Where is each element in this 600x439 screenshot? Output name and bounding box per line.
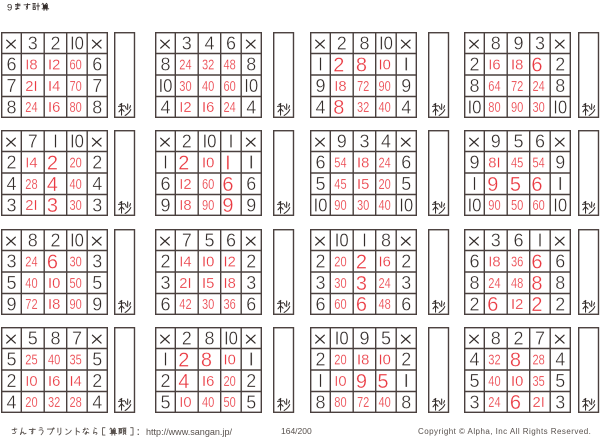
svg-text:4: 4 <box>6 174 16 194</box>
svg-text:40: 40 <box>25 276 37 292</box>
svg-text:3: 3 <box>6 252 16 272</box>
svg-text:60: 60 <box>533 198 545 214</box>
svg-text:24: 24 <box>25 100 37 116</box>
svg-text:9: 9 <box>336 131 346 151</box>
svg-text:I6: I6 <box>48 374 60 390</box>
svg-text:6: 6 <box>401 152 411 172</box>
svg-text:5: 5 <box>27 329 37 349</box>
svg-text:6: 6 <box>246 294 256 314</box>
svg-text:I6: I6 <box>378 254 390 270</box>
svg-text:32: 32 <box>489 353 501 369</box>
svg-text:8: 8 <box>491 329 501 349</box>
svg-text:8: 8 <box>315 393 325 413</box>
svg-text:30: 30 <box>202 297 214 313</box>
svg-text:3: 3 <box>359 131 369 151</box>
svg-text:20: 20 <box>334 353 346 369</box>
svg-text:8: 8 <box>359 33 369 53</box>
svg-text:90: 90 <box>69 297 81 313</box>
svg-text:I0: I0 <box>399 195 413 215</box>
svg-text:32: 32 <box>357 100 369 116</box>
svg-text:I0: I0 <box>378 353 390 369</box>
svg-text:6: 6 <box>470 252 480 272</box>
svg-text:7: 7 <box>27 131 37 151</box>
svg-text:28: 28 <box>533 353 545 369</box>
svg-text:3: 3 <box>160 273 170 293</box>
svg-text:9: 9 <box>487 173 498 195</box>
svg-text:60: 60 <box>334 297 346 313</box>
svg-text:I0: I0 <box>378 57 390 73</box>
svg-text:I0: I0 <box>334 374 346 390</box>
svg-text:8: 8 <box>6 97 16 117</box>
svg-text:I: I <box>317 371 322 391</box>
svg-text:5: 5 <box>510 173 521 195</box>
svg-text:I0: I0 <box>25 374 37 390</box>
svg-text:I0: I0 <box>223 353 235 369</box>
svg-text:2I: 2I <box>179 276 191 292</box>
svg-text:5: 5 <box>246 393 256 413</box>
svg-text:3: 3 <box>92 252 102 272</box>
svg-text:I: I <box>361 230 366 250</box>
svg-text:5: 5 <box>380 329 390 349</box>
svg-text:24: 24 <box>489 395 501 411</box>
svg-text:3: 3 <box>27 33 37 53</box>
svg-text:I0: I0 <box>202 131 216 151</box>
svg-text:4: 4 <box>556 350 566 370</box>
svg-text:20: 20 <box>223 374 235 390</box>
svg-text:I4: I4 <box>69 374 81 390</box>
svg-text:I8: I8 <box>511 57 523 73</box>
svg-text:90: 90 <box>511 100 523 116</box>
svg-text:5: 5 <box>401 174 411 194</box>
svg-text:9: 9 <box>160 195 170 215</box>
svg-text:48: 48 <box>223 57 235 73</box>
svg-text:I0: I0 <box>179 395 191 411</box>
svg-text:4: 4 <box>380 131 390 151</box>
svg-text:8: 8 <box>532 273 543 295</box>
svg-text:5: 5 <box>160 393 170 413</box>
svg-text:20: 20 <box>25 395 37 411</box>
svg-text:9: 9 <box>556 152 566 172</box>
svg-text:60: 60 <box>69 57 81 73</box>
svg-text:8: 8 <box>92 97 102 117</box>
svg-text:2: 2 <box>470 294 480 314</box>
svg-text:3: 3 <box>6 195 16 215</box>
svg-text:8: 8 <box>333 96 344 118</box>
svg-text:3: 3 <box>401 273 411 293</box>
svg-text:2: 2 <box>181 329 191 349</box>
svg-text:I0: I0 <box>223 329 237 349</box>
svg-text:I0: I0 <box>554 195 568 215</box>
svg-text:2I: 2I <box>25 198 37 214</box>
svg-text:I: I <box>228 131 233 151</box>
svg-text:9: 9 <box>246 195 256 215</box>
svg-text:36: 36 <box>223 297 235 313</box>
svg-text:6: 6 <box>535 131 545 151</box>
svg-text:5: 5 <box>470 371 480 391</box>
svg-text:80: 80 <box>334 395 346 411</box>
svg-text:4: 4 <box>204 33 214 53</box>
svg-text:9: 9 <box>491 131 501 151</box>
svg-text:2: 2 <box>355 251 366 273</box>
svg-text:90: 90 <box>378 79 390 95</box>
svg-text:9: 9 <box>355 371 366 393</box>
svg-text:40: 40 <box>48 353 60 369</box>
svg-text:I8: I8 <box>179 198 191 214</box>
svg-text:36: 36 <box>511 254 523 270</box>
svg-text:2: 2 <box>6 371 16 391</box>
svg-text:6: 6 <box>355 294 366 316</box>
svg-text:72: 72 <box>357 395 369 411</box>
svg-text:5: 5 <box>315 174 325 194</box>
svg-text:40: 40 <box>202 395 214 411</box>
svg-text:I8: I8 <box>357 353 369 369</box>
svg-text:I2: I2 <box>179 100 191 116</box>
svg-text:4: 4 <box>92 174 102 194</box>
svg-text:54: 54 <box>533 155 545 171</box>
svg-text:70: 70 <box>69 79 81 95</box>
svg-text:I8: I8 <box>489 254 501 270</box>
svg-text:2: 2 <box>46 152 57 174</box>
svg-text:8: 8 <box>355 54 366 76</box>
svg-text:6: 6 <box>514 230 524 250</box>
svg-text:I4: I4 <box>48 79 60 95</box>
svg-text:2: 2 <box>315 252 325 272</box>
svg-text:I: I <box>53 131 58 151</box>
svg-text:8: 8 <box>556 76 566 96</box>
svg-text:6: 6 <box>160 294 170 314</box>
svg-text:2: 2 <box>6 152 16 172</box>
svg-text:72: 72 <box>511 79 523 95</box>
svg-text:45: 45 <box>511 155 523 171</box>
svg-text:I6: I6 <box>202 100 214 116</box>
svg-text:30: 30 <box>533 100 545 116</box>
svg-text:4: 4 <box>401 97 411 117</box>
svg-text:I8: I8 <box>223 276 235 292</box>
svg-text:8: 8 <box>200 350 211 372</box>
svg-text:8: 8 <box>204 329 214 349</box>
svg-text:6: 6 <box>401 294 411 314</box>
svg-text:5: 5 <box>6 273 16 293</box>
svg-text:4: 4 <box>92 393 102 413</box>
svg-text:8: 8 <box>470 273 480 293</box>
svg-text:8: 8 <box>556 273 566 293</box>
svg-text:72: 72 <box>357 79 369 95</box>
svg-text:I: I <box>403 371 408 391</box>
svg-text:I: I <box>317 54 322 74</box>
svg-text:80: 80 <box>489 100 501 116</box>
svg-text:6: 6 <box>315 294 325 314</box>
svg-text:6: 6 <box>556 252 566 272</box>
svg-text:2: 2 <box>336 33 346 53</box>
svg-text:40: 40 <box>69 177 81 193</box>
svg-text:I0: I0 <box>334 329 348 349</box>
svg-text:30: 30 <box>179 79 191 95</box>
svg-text:2: 2 <box>532 294 543 316</box>
svg-text:4: 4 <box>470 350 480 370</box>
svg-text:I: I <box>248 152 253 172</box>
svg-text:I2: I2 <box>511 297 523 313</box>
svg-text:8: 8 <box>470 76 480 96</box>
svg-text:I5: I5 <box>202 276 214 292</box>
svg-text:I0: I0 <box>313 195 327 215</box>
svg-text:I2: I2 <box>48 57 60 73</box>
svg-text:I4: I4 <box>179 254 191 270</box>
svg-text:24: 24 <box>223 100 235 116</box>
svg-text:3: 3 <box>246 273 256 293</box>
svg-text:I0: I0 <box>158 76 172 96</box>
svg-text:20: 20 <box>334 254 346 270</box>
svg-text:I0: I0 <box>70 33 84 53</box>
svg-text:I0: I0 <box>468 97 482 117</box>
svg-text:8: 8 <box>401 393 411 413</box>
svg-text:I5: I5 <box>357 177 369 193</box>
svg-text:I6: I6 <box>202 374 214 390</box>
svg-text:2: 2 <box>178 350 189 372</box>
svg-text:30: 30 <box>357 198 369 214</box>
svg-text:6: 6 <box>222 173 233 195</box>
svg-text:2: 2 <box>401 350 411 370</box>
svg-text:6: 6 <box>532 54 543 76</box>
svg-text:7: 7 <box>72 329 82 349</box>
svg-text:9: 9 <box>401 76 411 96</box>
svg-text:5: 5 <box>556 371 566 391</box>
svg-text:50: 50 <box>69 276 81 292</box>
svg-text:2: 2 <box>401 252 411 272</box>
svg-text:I4: I4 <box>25 155 37 171</box>
svg-text:64: 64 <box>489 79 501 95</box>
svg-text:2: 2 <box>333 54 344 76</box>
svg-text:90: 90 <box>489 198 501 214</box>
svg-text:35: 35 <box>69 353 81 369</box>
svg-text:8: 8 <box>246 54 256 74</box>
svg-text:3: 3 <box>181 33 191 53</box>
svg-text:48: 48 <box>378 297 390 313</box>
svg-text:I8: I8 <box>48 297 60 313</box>
svg-text:6: 6 <box>6 54 16 74</box>
svg-text:I0: I0 <box>334 230 348 250</box>
svg-text:I0: I0 <box>202 155 214 171</box>
svg-text:40: 40 <box>378 198 390 214</box>
svg-text:6: 6 <box>92 54 102 74</box>
svg-text:7: 7 <box>92 76 102 96</box>
svg-text:3: 3 <box>46 195 57 217</box>
svg-text:I: I <box>558 174 563 194</box>
svg-text:9: 9 <box>7 3 12 14</box>
svg-text:5: 5 <box>92 273 102 293</box>
svg-text:6: 6 <box>532 251 543 273</box>
svg-text:6: 6 <box>246 174 256 194</box>
svg-text:2I: 2I <box>533 395 545 411</box>
svg-text:2: 2 <box>50 33 60 53</box>
svg-text:40: 40 <box>378 395 390 411</box>
svg-text:72: 72 <box>25 297 37 313</box>
svg-text:9: 9 <box>6 294 16 314</box>
svg-text:I0: I0 <box>202 254 214 270</box>
svg-text:2: 2 <box>315 350 325 370</box>
svg-text:60: 60 <box>202 177 214 193</box>
svg-text:2: 2 <box>92 371 102 391</box>
svg-text:2: 2 <box>178 152 189 174</box>
svg-text:I2: I2 <box>179 177 191 193</box>
svg-text:20: 20 <box>378 177 390 193</box>
svg-text:3: 3 <box>92 195 102 215</box>
svg-text:2: 2 <box>514 329 524 349</box>
svg-text:I: I <box>403 54 408 74</box>
svg-text:24: 24 <box>179 57 191 73</box>
svg-text:32: 32 <box>202 57 214 73</box>
svg-text:2: 2 <box>556 54 566 74</box>
svg-text:80: 80 <box>69 100 81 116</box>
svg-text:8: 8 <box>491 33 501 53</box>
svg-text:54: 54 <box>334 155 346 171</box>
svg-text:8: 8 <box>380 230 390 250</box>
svg-text:5: 5 <box>204 230 214 250</box>
svg-text:2: 2 <box>181 131 191 151</box>
svg-text:25: 25 <box>25 353 37 369</box>
svg-text:2I: 2I <box>25 79 37 95</box>
svg-text:2: 2 <box>556 294 566 314</box>
svg-text:2: 2 <box>92 152 102 172</box>
svg-text:6: 6 <box>225 230 235 250</box>
svg-text:4: 4 <box>178 371 189 393</box>
svg-text:24: 24 <box>25 254 37 270</box>
svg-text:8: 8 <box>50 329 60 349</box>
svg-text:2: 2 <box>246 371 256 391</box>
svg-text:9: 9 <box>315 76 325 96</box>
svg-text:2: 2 <box>50 230 60 250</box>
svg-text:9: 9 <box>514 33 524 53</box>
svg-text:I8: I8 <box>334 79 346 95</box>
svg-text:I0: I0 <box>511 374 523 390</box>
svg-text:30: 30 <box>334 276 346 292</box>
svg-text:I2: I2 <box>223 254 235 270</box>
svg-text:50: 50 <box>223 395 235 411</box>
svg-text:5: 5 <box>92 350 102 370</box>
svg-text:I8: I8 <box>25 57 37 73</box>
svg-text:2: 2 <box>160 252 170 272</box>
svg-text:2: 2 <box>470 54 480 74</box>
svg-text:40: 40 <box>378 100 390 116</box>
svg-text:4: 4 <box>246 97 256 117</box>
svg-text:8: 8 <box>27 230 37 250</box>
svg-text:6: 6 <box>46 251 57 273</box>
svg-text:5: 5 <box>377 371 388 393</box>
svg-text:I: I <box>162 152 167 172</box>
svg-text:6: 6 <box>510 392 521 414</box>
svg-text:7: 7 <box>181 230 191 250</box>
svg-text:4: 4 <box>6 393 16 413</box>
svg-text:5: 5 <box>514 131 524 151</box>
svg-text:60: 60 <box>223 79 235 95</box>
svg-text:3: 3 <box>470 393 480 413</box>
svg-text:32: 32 <box>48 395 60 411</box>
svg-text:I0: I0 <box>48 276 60 292</box>
svg-text:28: 28 <box>69 395 81 411</box>
svg-text:6: 6 <box>532 173 543 195</box>
svg-text:4: 4 <box>46 173 57 195</box>
svg-text:40: 40 <box>489 374 501 390</box>
svg-text:90: 90 <box>202 198 214 214</box>
svg-text:3: 3 <box>315 273 325 293</box>
svg-text:I6: I6 <box>489 57 501 73</box>
svg-text:48: 48 <box>511 276 523 292</box>
svg-text:24: 24 <box>378 155 390 171</box>
svg-text:9: 9 <box>222 195 233 217</box>
svg-text:3: 3 <box>355 273 366 295</box>
svg-text:3: 3 <box>556 393 566 413</box>
svg-text:8: 8 <box>510 350 521 372</box>
svg-text:4: 4 <box>160 97 170 117</box>
svg-text:90: 90 <box>334 198 346 214</box>
svg-text:9: 9 <box>92 294 102 314</box>
svg-text:20: 20 <box>69 155 81 171</box>
svg-text:：: ： <box>136 427 145 437</box>
svg-text:I8: I8 <box>357 155 369 171</box>
svg-text:I: I <box>248 350 253 370</box>
svg-text:6: 6 <box>225 33 235 53</box>
svg-text:I: I <box>225 152 231 174</box>
svg-text:I0: I0 <box>378 33 392 53</box>
svg-text:50: 50 <box>511 198 523 214</box>
svg-text:7: 7 <box>535 329 545 349</box>
svg-text:I: I <box>162 350 167 370</box>
svg-text:45: 45 <box>334 177 346 193</box>
svg-text:30: 30 <box>69 254 81 270</box>
svg-text:6: 6 <box>487 294 498 316</box>
svg-text:http://www.sangan.jp/: http://www.sangan.jp/ <box>146 427 232 437</box>
svg-text:3: 3 <box>491 230 501 250</box>
svg-text:42: 42 <box>179 297 191 313</box>
svg-text:4: 4 <box>315 97 325 117</box>
svg-text:I0: I0 <box>468 195 482 215</box>
svg-text:I: I <box>472 174 477 194</box>
svg-text:40: 40 <box>202 79 214 95</box>
svg-text:30: 30 <box>69 198 81 214</box>
svg-text:I: I <box>538 230 543 250</box>
svg-text:24: 24 <box>533 79 545 95</box>
svg-text:24: 24 <box>489 276 501 292</box>
svg-text:35: 35 <box>533 374 545 390</box>
svg-text:I0: I0 <box>554 97 568 117</box>
svg-text:8: 8 <box>160 54 170 74</box>
svg-text:24: 24 <box>378 276 390 292</box>
svg-text:6: 6 <box>315 152 325 172</box>
svg-text:I0: I0 <box>70 131 84 151</box>
svg-text:6: 6 <box>160 174 170 194</box>
svg-text:28: 28 <box>25 177 37 193</box>
svg-text:2: 2 <box>160 371 170 391</box>
svg-text:I0: I0 <box>244 76 258 96</box>
svg-text:I6: I6 <box>48 100 60 116</box>
svg-text:9: 9 <box>470 152 480 172</box>
svg-text:9: 9 <box>359 329 369 349</box>
svg-text:7: 7 <box>6 76 16 96</box>
svg-text:3: 3 <box>535 33 545 53</box>
svg-text:5: 5 <box>6 350 16 370</box>
svg-text:2: 2 <box>246 252 256 272</box>
svg-text:8I: 8I <box>489 155 501 171</box>
svg-text:I0: I0 <box>70 230 84 250</box>
